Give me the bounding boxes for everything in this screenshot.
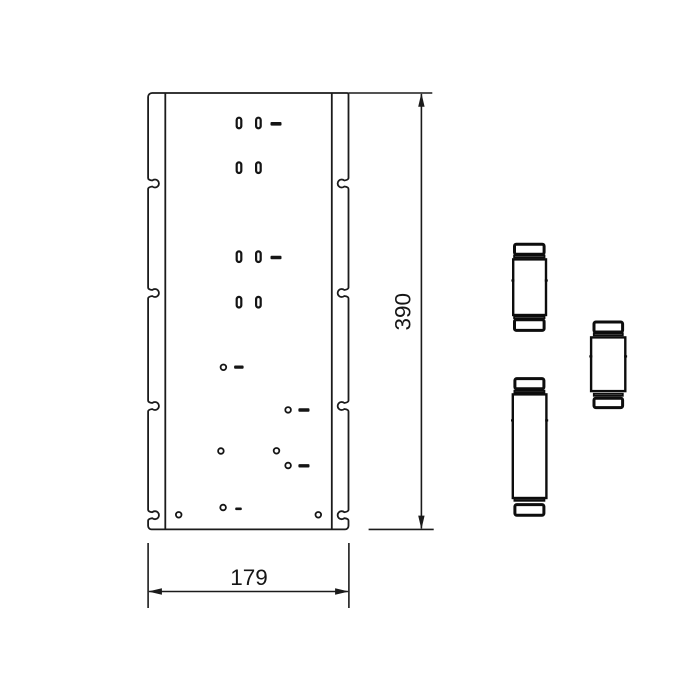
svg-text:390: 390 (391, 293, 416, 331)
svg-text:179: 179 (230, 565, 268, 590)
